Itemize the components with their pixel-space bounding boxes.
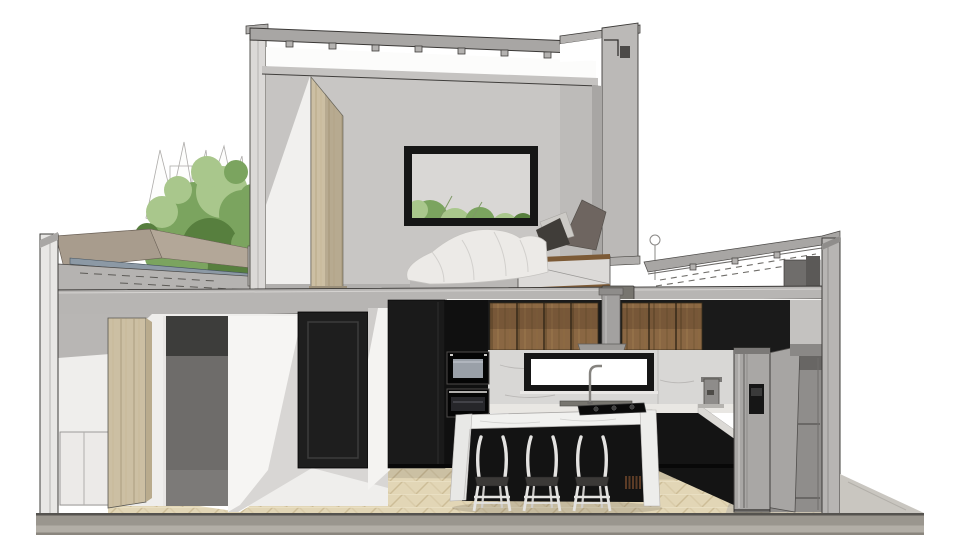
island-base: [462, 423, 646, 502]
wardrobe-lightwood: [108, 318, 152, 508]
roof-dark-block-inner: [806, 256, 820, 290]
gutter-notch: [620, 46, 630, 58]
section-drawing: [0, 0, 965, 560]
interior-door-black: [298, 312, 368, 468]
door-niche-header: [166, 316, 228, 356]
upper-cabinets-wood-left: [490, 303, 598, 350]
pantry-lintel: [790, 342, 822, 356]
oven-lower-glass: [451, 397, 485, 411]
entry-hall: [58, 308, 390, 512]
wall-cut-left: [40, 232, 58, 515]
wall-oven-upper: [447, 352, 489, 384]
wall-oven-lower: [447, 389, 489, 417]
fridge-top-vent: [734, 348, 770, 354]
fridge: [734, 348, 770, 512]
wall-above-pantry: [790, 300, 822, 344]
upper-cabinets-wood-right: [622, 303, 702, 350]
entry-open-unit: [60, 432, 110, 505]
architectural-section-render: [0, 0, 965, 560]
door-niche-floor-glow: [166, 470, 228, 506]
tall-cabinet-left: [388, 300, 445, 468]
door-niche-frame: [163, 316, 166, 506]
wall-cut-right: [822, 236, 840, 515]
upper-right-wall: [602, 23, 638, 264]
bedroom-picture-frame: [404, 146, 538, 240]
